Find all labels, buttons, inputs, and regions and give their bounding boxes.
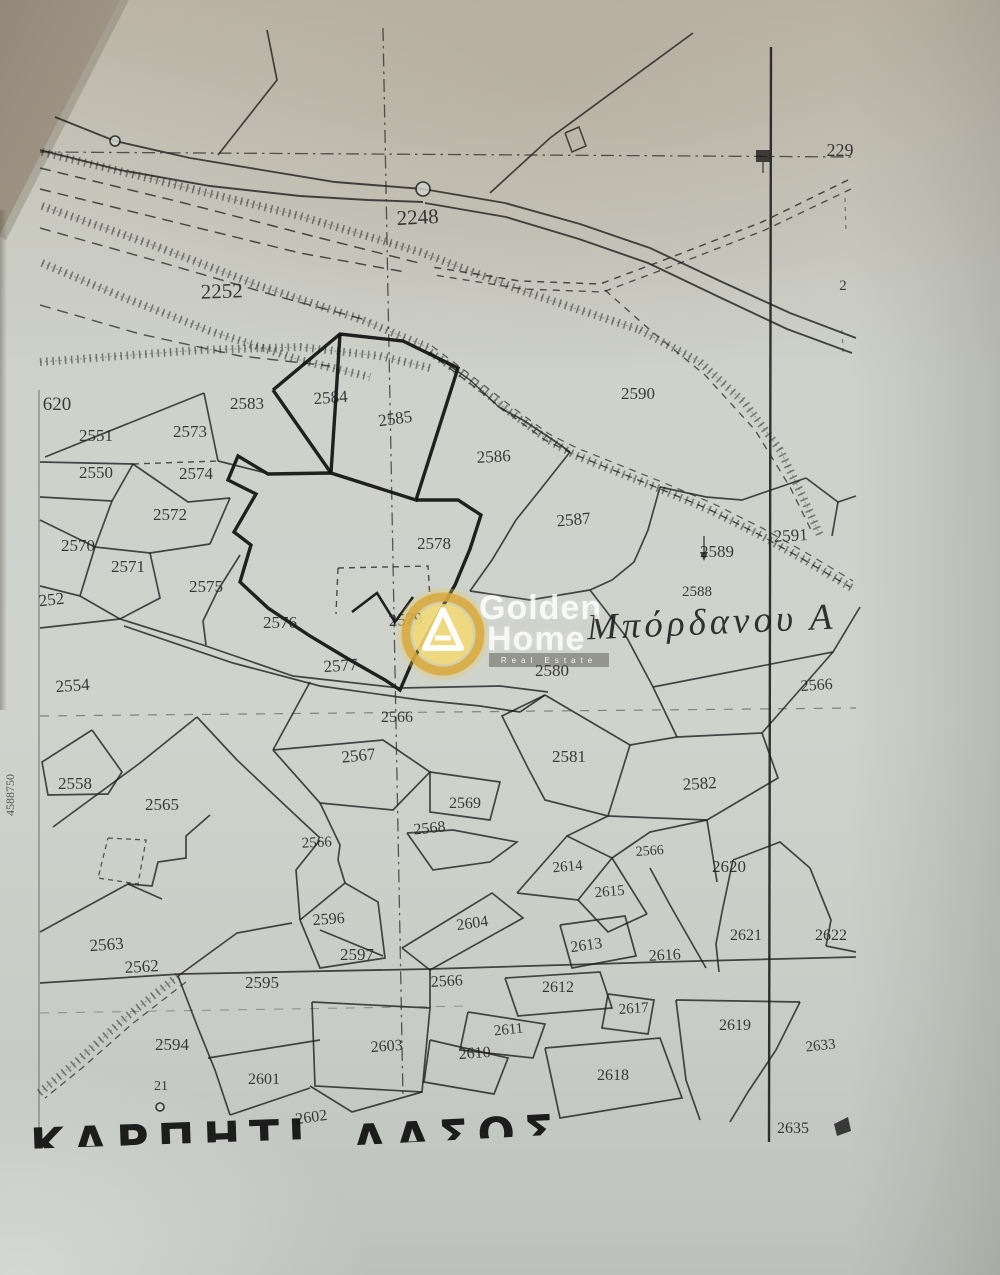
parcel-boundary-line: [40, 228, 370, 321]
parcel-boundary-line: [40, 884, 162, 932]
parcel-number-label: 620: [43, 394, 72, 415]
parcel-boundary-line: [40, 619, 120, 628]
parcel-number-label: 2248: [396, 204, 439, 230]
parcel-boundary-line: [565, 127, 586, 152]
scarp-hatch-band: [40, 347, 430, 368]
parcel-number-label: 2568: [413, 818, 447, 838]
parcel-boundary-line: [336, 568, 338, 614]
parcel-boundary-line: [826, 946, 856, 952]
parcel-boundary-line: [208, 1040, 320, 1058]
parcel-number-label: 2619: [719, 1017, 751, 1034]
parcel-boundary-line: [40, 708, 856, 716]
grid-reference-vertical: 4588750: [3, 774, 17, 816]
parcel-number-label: 2578: [417, 534, 451, 553]
survey-point-circle: [156, 1103, 164, 1111]
parcel-boundary-line: [432, 180, 848, 284]
parcel-number-label: 2551: [79, 426, 113, 445]
parcel-number-label: 2562: [124, 956, 159, 977]
parcel-number-label: 2581: [552, 747, 586, 766]
parcel-boundary-line: [338, 860, 345, 883]
parcel-boundary-line: [470, 590, 590, 600]
scarp-hatch-band: [640, 330, 820, 535]
parcel-number-label: 2589: [700, 542, 734, 561]
parcel-number-label: 2612: [542, 979, 574, 996]
survey-point-circle: [110, 136, 120, 146]
parcel-number-label: 2577: [323, 655, 359, 676]
parcel-boundary-line: [832, 502, 838, 536]
parcel-boundary-line: [310, 1086, 422, 1112]
parcel-boundary-line: [490, 33, 693, 193]
parcel-number-label: 2566: [381, 709, 413, 726]
parcel-boundary-line: [425, 203, 852, 353]
parcel-boundary-line: [769, 47, 771, 1142]
parcel-number-label: 2621: [730, 927, 762, 944]
parcel-number-label: 2585: [377, 407, 413, 431]
parcel-number-label: 2575: [189, 577, 223, 596]
parcel-number-label: 2566: [301, 834, 332, 852]
parcel-number-label: 2554: [55, 675, 91, 696]
parcel-number-label: 2580: [535, 661, 569, 680]
parcel-boundary-line: [128, 815, 210, 886]
parcel-number-label: 2565: [145, 795, 179, 814]
place-name-greek: Μπόρδανου Α: [585, 597, 837, 649]
parcel-number-label: 2620: [712, 857, 746, 876]
parcel-boundary-line: [40, 150, 423, 202]
parcel-number-label: 2591: [773, 525, 808, 546]
scarp-hatch-core: [42, 206, 430, 348]
parcel-boundary-line: [806, 478, 856, 502]
parcel-number-label: 2582: [682, 773, 717, 794]
parcel-number-label: 2579: [388, 609, 423, 630]
parcel-number-label: 2633: [805, 1036, 837, 1055]
parcel-number-label: 2573: [173, 422, 207, 441]
parcel-number-label: 2611: [493, 1021, 524, 1040]
parcel-number-label: 2616: [648, 946, 681, 965]
survey-point-circle: [416, 182, 430, 196]
scarp-hatch-band: [42, 152, 640, 330]
parcel-boundary-line: [567, 816, 608, 836]
parcel-number-label: 2610: [458, 1044, 491, 1063]
parcel-number-label: 2576: [263, 613, 297, 632]
parcel-boundary-line: [296, 840, 320, 920]
parcel-boundary-line: [545, 695, 630, 745]
parcel-number-label: 21: [154, 1079, 168, 1094]
parcel-boundary-line: [40, 152, 856, 157]
parcel-boundary-line: [845, 198, 846, 232]
scarp-hatch-core: [40, 347, 430, 368]
parcel-number-label: 2588: [682, 584, 712, 600]
parcel-boundary-line: [320, 803, 340, 860]
parcel-boundary-line: [834, 1117, 851, 1136]
parcel-number-label: 2604: [455, 913, 489, 934]
parcel-number-label: 2569: [449, 795, 481, 812]
parcel-number-label: 2574: [179, 464, 214, 483]
scarp-hatch-core: [42, 152, 640, 330]
parcel-boundary-line: [653, 687, 677, 737]
parcel-number-label: 2618: [597, 1067, 629, 1084]
scanned-cadastral-map-photo: 2248225222926202551255025732574257225702…: [0, 0, 1000, 1275]
parcel-number-label: 2584: [313, 387, 349, 408]
parcel-number-label: 2586: [476, 446, 511, 467]
parcel-number-label: 2583: [230, 394, 264, 413]
parcel-boundary-line: [40, 189, 405, 272]
parcel-boundary-line: [676, 1000, 800, 1002]
parcel-number-label: 2595: [245, 973, 279, 992]
parcel-boundary-line: [630, 733, 762, 745]
parcel-number-label: 2558: [58, 774, 92, 793]
parcel-number-label: 2601: [248, 1071, 280, 1088]
parcel-number-label: 2622: [815, 927, 847, 944]
parcel-number-label: 2566: [635, 843, 664, 860]
parcel-boundary-line: [470, 452, 570, 591]
parcel-number-label: 2617: [618, 1000, 650, 1018]
parcel-number-label: 2572: [153, 505, 187, 524]
parcel-number-label: 2571: [111, 557, 145, 576]
parcel-boundary-line: [756, 150, 770, 162]
parcel-number-label: 2594: [155, 1035, 190, 1054]
parcel-number-label: 2563: [89, 934, 124, 955]
parcel-boundary-line: [80, 596, 120, 619]
parcel-boundary-line: [434, 189, 851, 292]
parcel-number-label: 2550: [79, 463, 113, 482]
parcel-boundary-line: [203, 555, 240, 645]
parcel-boundary-line: [273, 682, 310, 750]
parcel-boundary-line: [578, 900, 647, 932]
parcel-number-label: 252: [38, 589, 65, 611]
parcel-boundary-line: [716, 860, 733, 972]
parcel-number-label: 2596: [312, 910, 345, 929]
parcel-boundary-line: [95, 501, 112, 547]
cadastral-map: 2248225222926202551255025732574257225702…: [0, 0, 1000, 1275]
parcel-number-label: 2252: [200, 278, 243, 303]
parcel-boundary-line: [423, 189, 856, 338]
parcel-number-label: 2: [839, 278, 847, 294]
parcel-number-label: 2567: [341, 744, 377, 767]
parcel-boundary-line: [590, 487, 660, 590]
parcel-boundary-line: [40, 168, 423, 264]
parcel-boundary-line: [383, 28, 403, 1098]
parcel-boundary-line: [178, 923, 292, 976]
parcel-number-label: 2566: [800, 676, 833, 695]
parcel-number-label: 2613: [569, 935, 603, 956]
parcel-number-label: 2635: [777, 1120, 809, 1137]
parcel-boundary-line: [676, 1000, 700, 1120]
parcel-number-label: 2597: [340, 945, 375, 964]
parcel-boundary-line: [95, 544, 210, 553]
parcel-boundary-line: [338, 566, 430, 600]
parcel-number-label: 2570: [61, 536, 95, 555]
parcel-number-label: 229: [827, 140, 854, 160]
parcel-number-label: 2615: [594, 883, 625, 902]
parcel-number-label: 2587: [556, 509, 592, 531]
parcel-boundary-line: [218, 30, 277, 155]
parcel-number-label: 2614: [552, 858, 584, 877]
parcel-boundary-line: [98, 838, 146, 884]
parcel-number-label: 2590: [621, 384, 655, 403]
scarp-hatch-core: [640, 330, 820, 535]
parcel-number-label: 2603: [370, 1037, 403, 1056]
parcel-boundary-line: [197, 717, 320, 838]
parcel-number-label: 2566: [430, 972, 463, 991]
parcel-boundary-line: [210, 498, 230, 544]
